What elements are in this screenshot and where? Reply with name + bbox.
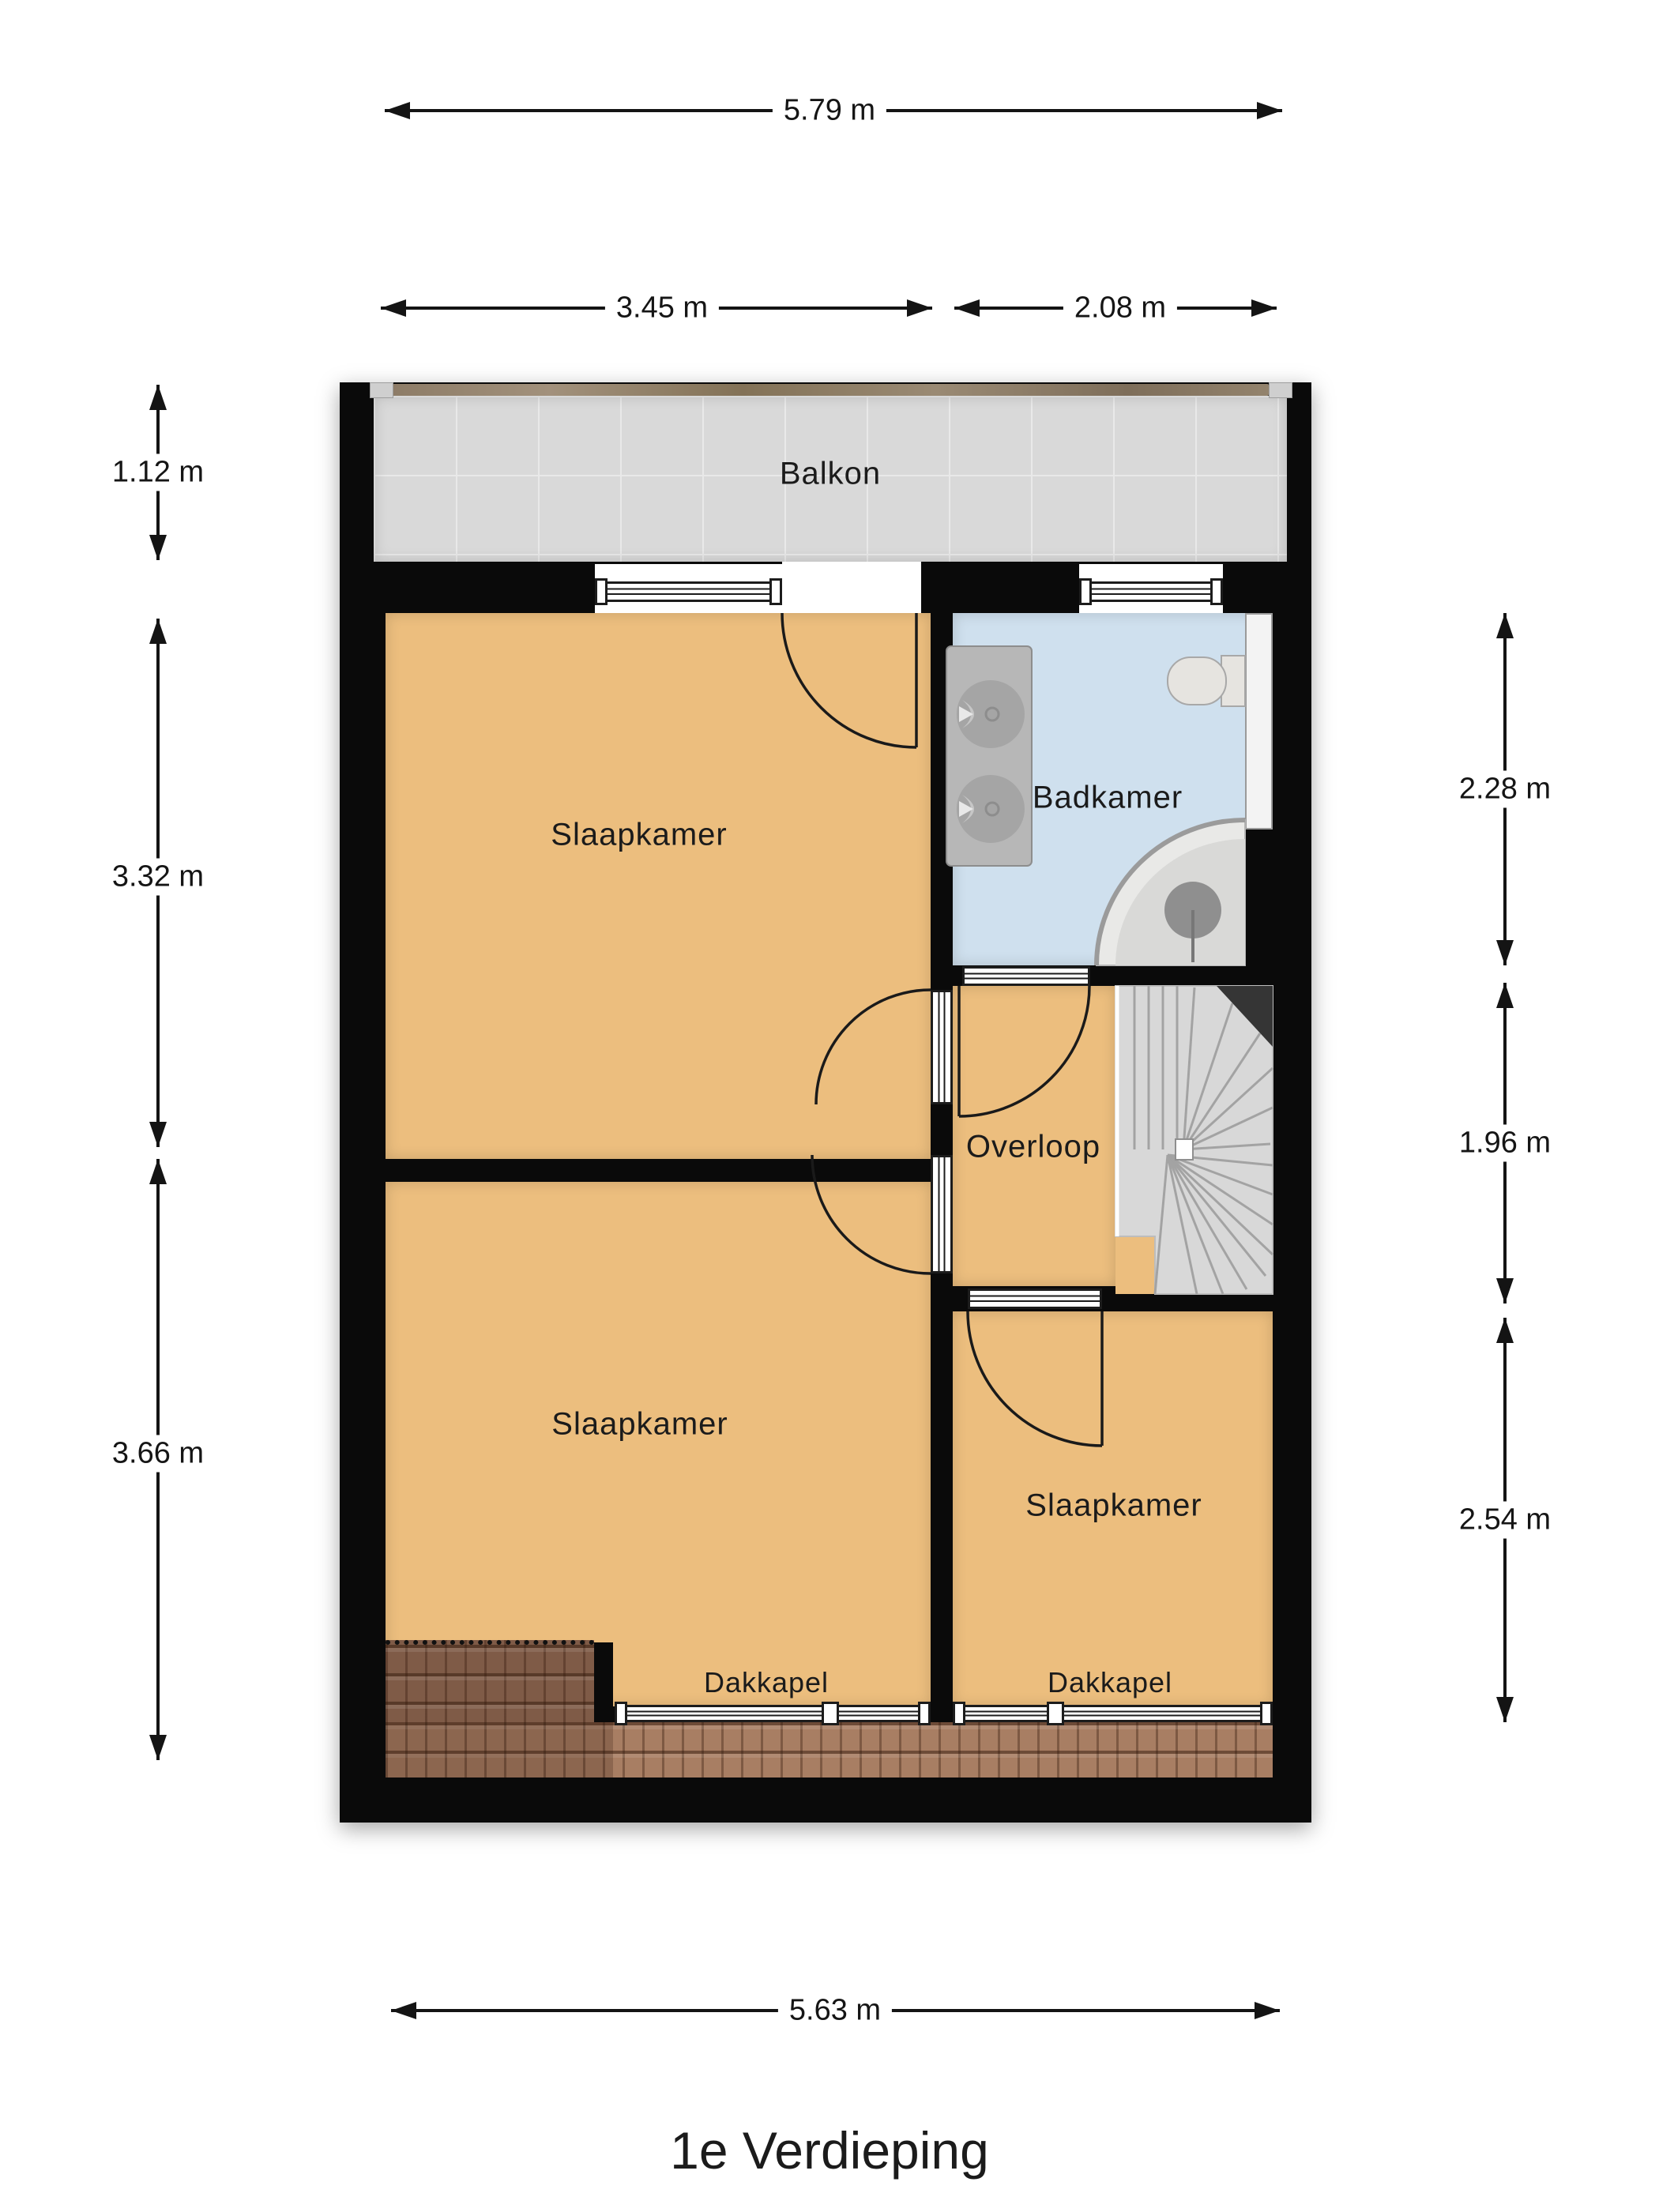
- dim-label-right-bottom: 2.54 m: [1448, 1502, 1562, 1539]
- toilet-bowl: [1168, 657, 1226, 705]
- dim-label-top-right: 2.08 m: [1063, 290, 1177, 327]
- dim-label-bottom-total: 5.63 m: [778, 1992, 892, 2030]
- slaapkamer-3-door-swing: [968, 1311, 1102, 1446]
- room-label-slaapkamer-2: Slaapkamer: [551, 1407, 728, 1443]
- dim-label-left-balkon: 1.12 m: [101, 454, 215, 491]
- dim-label-right-top: 2.28 m: [1448, 771, 1562, 808]
- room-label-slaapkamer-1: Slaapkamer: [551, 818, 727, 853]
- floor-plan-page: { "title": "1e Verdieping", "plan": { "r…: [0, 0, 1659, 2212]
- dimension-arrows: [149, 102, 1514, 2019]
- slaapkamer-2-door-swing: [812, 1155, 931, 1273]
- room-label-balkon: Balkon: [780, 457, 881, 492]
- dim-label-left-mid: 3.32 m: [101, 859, 215, 896]
- stair-newel-post: [1176, 1139, 1193, 1160]
- dim-label-right-mid: 1.96 m: [1448, 1125, 1562, 1162]
- room-label-dakkapel-links: Dakkapel: [704, 1666, 829, 1699]
- balcony-door-swing: [782, 613, 916, 747]
- page-title: 1e Verdieping: [670, 2120, 989, 2180]
- badkamer-door-swing: [959, 986, 1089, 1116]
- staircase: [1115, 986, 1273, 1294]
- plan-vector-overlay: [0, 0, 1659, 2212]
- dim-label-top-left: 3.45 m: [605, 290, 719, 327]
- room-label-overloop: Overloop: [966, 1130, 1100, 1165]
- doors: [782, 613, 1102, 1446]
- slaapkamer-1-door-swing: [816, 990, 931, 1104]
- room-label-slaapkamer-3: Slaapkamer: [1025, 1488, 1202, 1524]
- room-label-badkamer: Badkamer: [1033, 781, 1183, 816]
- room-label-dakkapel-rechts: Dakkapel: [1048, 1666, 1172, 1699]
- dim-label-top-total: 5.79 m: [773, 92, 886, 130]
- dim-label-left-bottom: 3.66 m: [101, 1435, 215, 1473]
